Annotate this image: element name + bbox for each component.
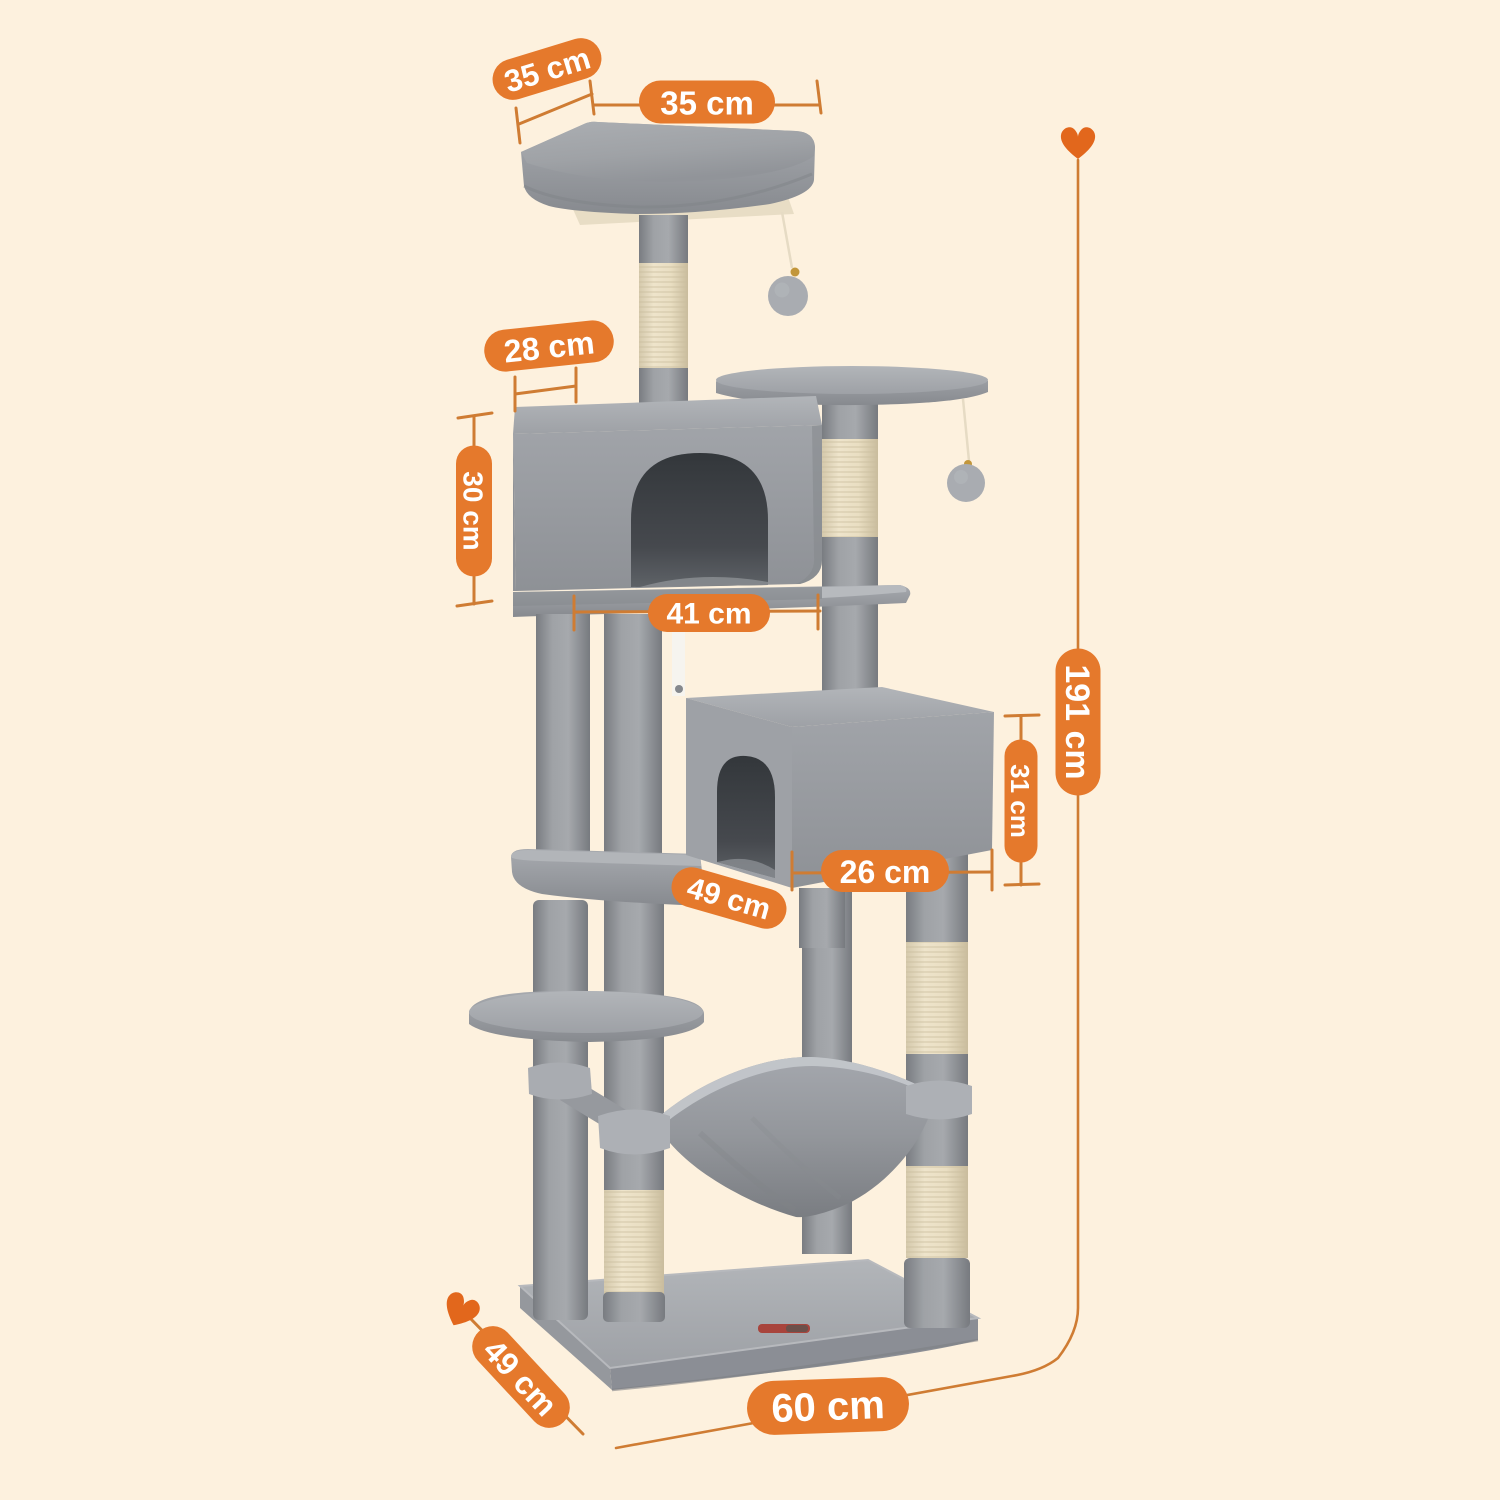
svg-text:35 cm: 35 cm [660, 85, 754, 122]
svg-text:31 cm: 31 cm [1005, 764, 1035, 838]
svg-text:60 cm: 60 cm [771, 1383, 886, 1431]
svg-text:30 cm: 30 cm [458, 471, 489, 550]
svg-text:191 cm: 191 cm [1058, 664, 1096, 779]
svg-text:26 cm: 26 cm [840, 854, 931, 890]
svg-text:41 cm: 41 cm [666, 598, 751, 631]
